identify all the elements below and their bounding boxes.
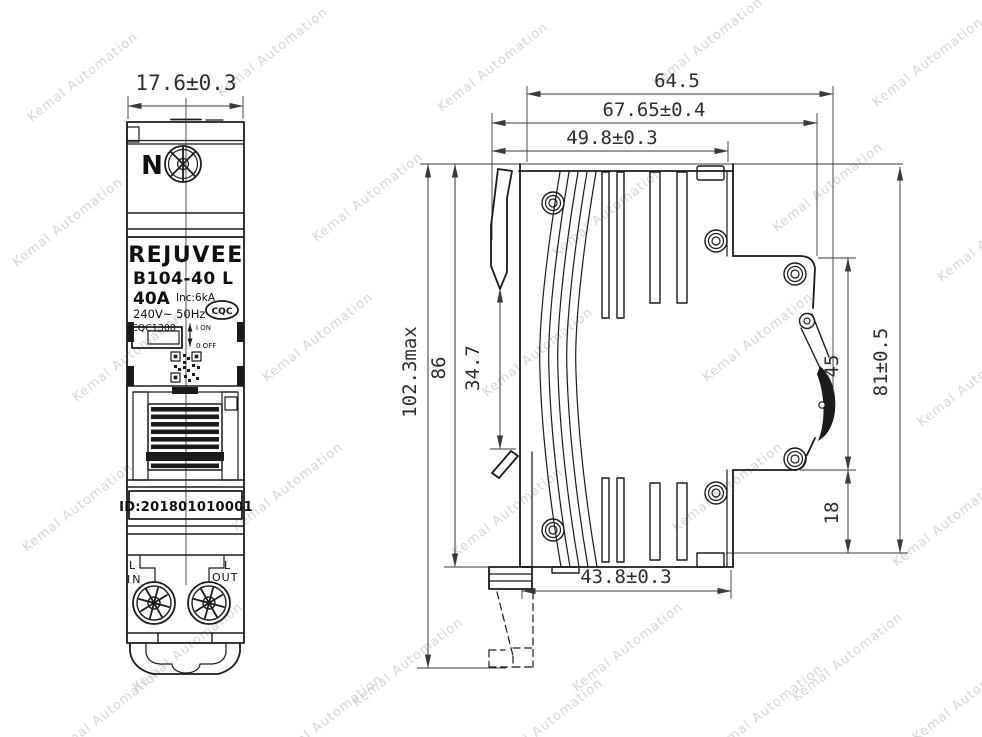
din-clip-tab bbox=[492, 451, 518, 478]
output-label: OUT bbox=[212, 571, 238, 584]
rated-current-label: 40A bbox=[133, 289, 171, 309]
side-dim-18: 18 bbox=[821, 502, 843, 525]
toggle-handle bbox=[146, 404, 224, 470]
side-dim-34-7: 34.7 bbox=[462, 345, 484, 391]
input-label: IN bbox=[127, 573, 142, 586]
side-view: 64.5 67.65±0.4 49.8±0.3 43.8±0.3 102.3ma… bbox=[399, 70, 908, 668]
rivet-icon bbox=[784, 263, 806, 285]
breaking-capacity-label: Inc:6kA bbox=[176, 292, 216, 304]
voltage-frequency-label: 240V~ 50Hz bbox=[133, 307, 205, 321]
id-number-label: ID:201801010001 bbox=[119, 500, 253, 515]
rivet-icon bbox=[705, 482, 727, 504]
cqc-logo-text: CQC bbox=[212, 307, 233, 317]
input-terminal-screw-icon bbox=[133, 582, 175, 624]
side-dim-86: 86 bbox=[428, 357, 450, 380]
output-terminal-screw-icon bbox=[188, 582, 230, 624]
side-dim-102-3-max: 102.3max bbox=[399, 326, 421, 418]
brand-label: REJUVEE bbox=[128, 243, 244, 268]
technical-drawing-canvas: Kemal AutomationKemal AutomationKemal Au… bbox=[0, 0, 982, 737]
mcb-dimension-drawing: 17.6±0.3 N REJUVEE B bbox=[0, 0, 982, 737]
side-dim-49-8: 49.8±0.3 bbox=[566, 127, 658, 149]
model-label: B104-40 L bbox=[133, 269, 233, 289]
side-dim-64-5: 64.5 bbox=[654, 70, 700, 92]
switch-on-label: I ON bbox=[196, 324, 211, 332]
rivet-icon bbox=[542, 519, 564, 541]
neutral-screw-icon bbox=[165, 146, 201, 182]
rivet-icon bbox=[705, 230, 727, 252]
side-dim-81: 81±0.5 bbox=[870, 328, 892, 397]
neutral-terminal-label: N bbox=[141, 151, 163, 181]
input-phase-label: L bbox=[129, 559, 136, 572]
side-dim-43-8: 43.8±0.3 bbox=[580, 566, 672, 588]
front-view: 17.6±0.3 N REJUVEE B bbox=[119, 71, 253, 674]
din-rail-hook bbox=[491, 169, 512, 289]
switch-off-label: 0 OFF bbox=[196, 342, 216, 350]
rivet-icon bbox=[542, 192, 564, 214]
rivet-icon bbox=[784, 448, 806, 470]
front-width-dimension: 17.6±0.3 bbox=[135, 71, 236, 95]
qr-code-icon bbox=[171, 352, 201, 382]
toggle-lever bbox=[800, 314, 836, 456]
din-clip bbox=[489, 567, 533, 667]
side-dim-67-65: 67.65±0.4 bbox=[603, 99, 706, 121]
cert-number-label: CQC1308 bbox=[131, 323, 176, 334]
